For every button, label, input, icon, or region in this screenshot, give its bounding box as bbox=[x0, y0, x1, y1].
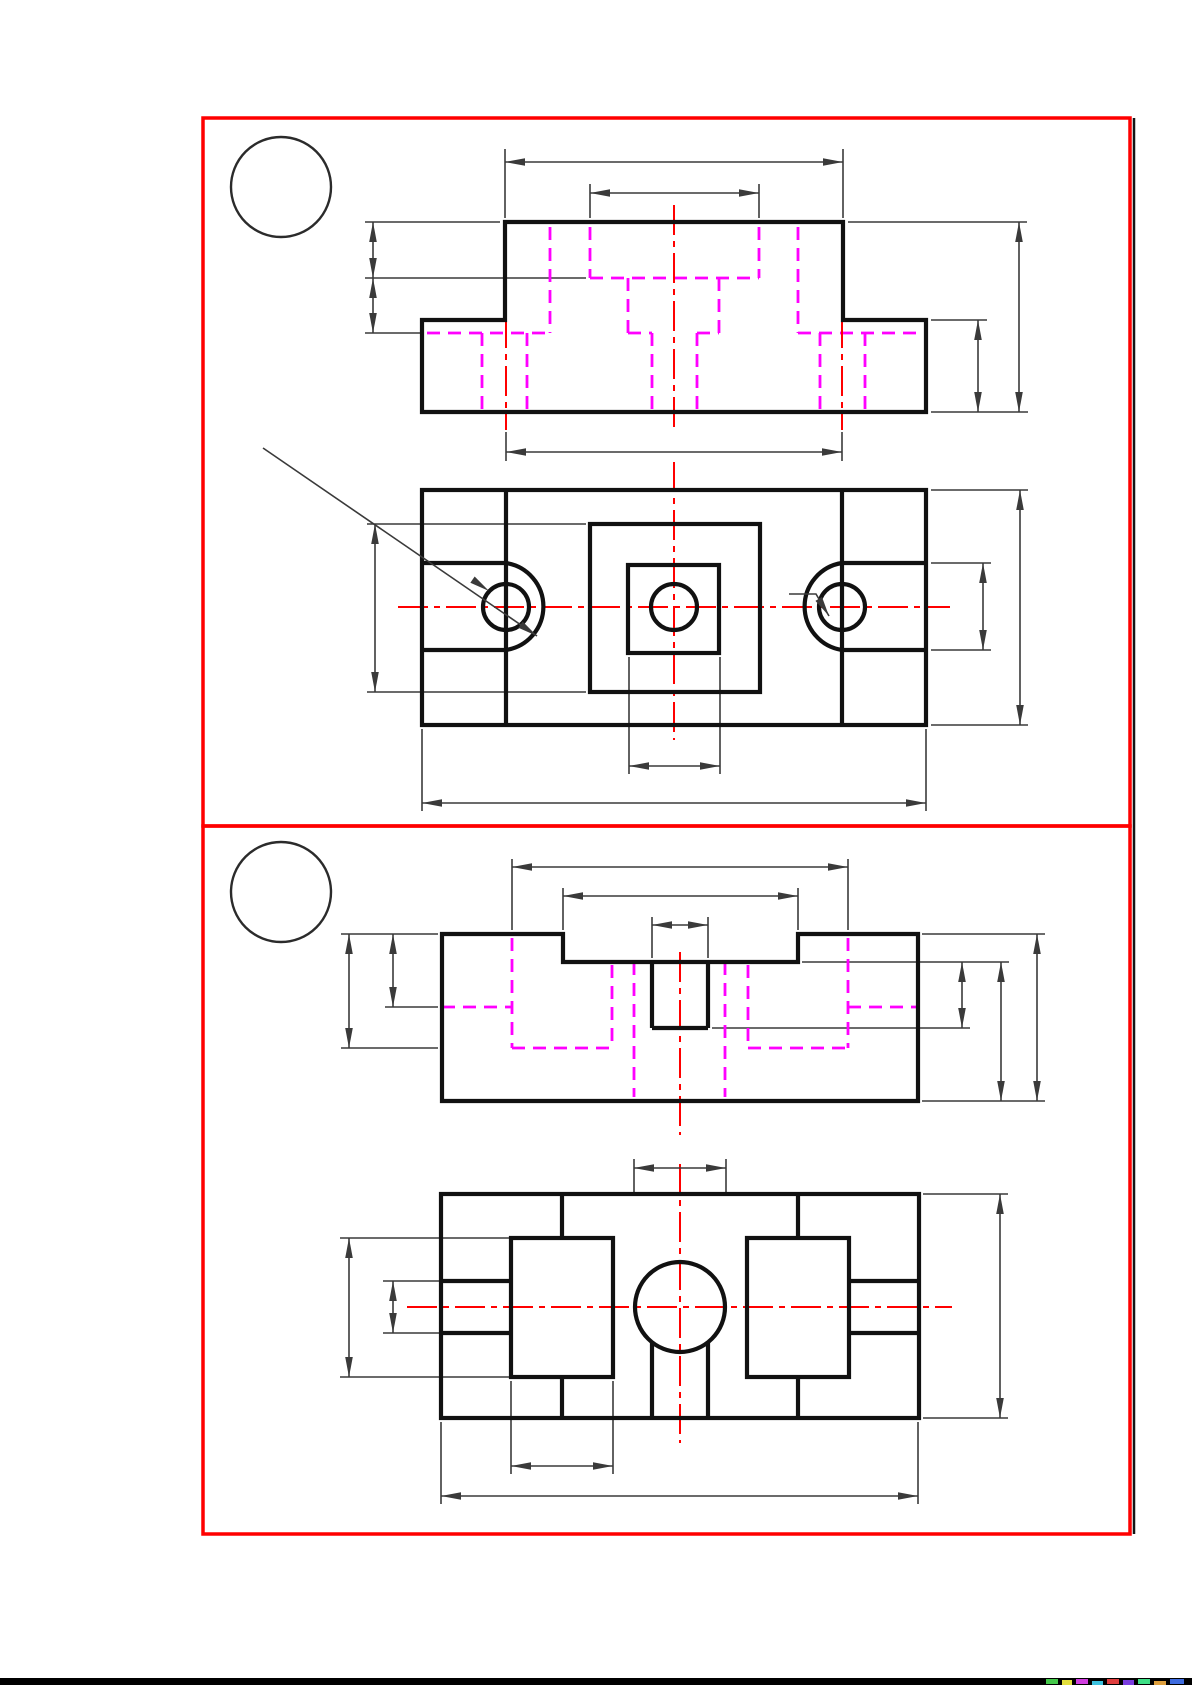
dimension-arrowhead bbox=[778, 892, 798, 900]
bottom-noise-pixel bbox=[1154, 1681, 1166, 1685]
dimension-arrowhead bbox=[369, 258, 377, 278]
dimension-arrowhead bbox=[706, 1164, 726, 1172]
dimension-arrowhead bbox=[441, 1492, 461, 1500]
dimension-arrowhead bbox=[389, 987, 397, 1007]
dimension-arrowhead bbox=[898, 1492, 918, 1500]
drawing-page bbox=[0, 0, 1192, 1685]
dimension-arrowhead bbox=[1033, 1081, 1041, 1101]
dimension-arrowhead bbox=[629, 762, 649, 770]
dimension-arrowhead bbox=[906, 799, 926, 807]
dimension-arrowhead bbox=[422, 799, 442, 807]
panel-1-balloon-circle bbox=[231, 137, 331, 237]
dimension-arrowhead bbox=[828, 863, 848, 871]
panel-1-border bbox=[203, 118, 1130, 826]
dimension-arrowhead bbox=[505, 158, 525, 166]
dimension-arrowhead bbox=[979, 563, 987, 583]
bottom-noise-pixel bbox=[1076, 1679, 1088, 1684]
dimension-arrowhead bbox=[345, 1357, 353, 1377]
dimension-arrowhead bbox=[506, 448, 526, 456]
dimension-arrowhead bbox=[634, 1164, 654, 1172]
dimension-arrowhead bbox=[345, 934, 353, 954]
bottom-noise-pixel bbox=[1107, 1679, 1119, 1684]
dimension-arrowhead bbox=[822, 448, 842, 456]
dimension-arrowhead bbox=[369, 222, 377, 242]
dimension-arrowhead bbox=[389, 1281, 397, 1301]
dimension-arrowhead bbox=[1015, 222, 1023, 242]
dimension-arrowhead bbox=[563, 892, 583, 900]
dimension-arrowhead bbox=[739, 189, 759, 197]
bottom-noise-pixel bbox=[1092, 1681, 1103, 1685]
dimension-arrowhead bbox=[590, 189, 610, 197]
bottom-noise-pixel bbox=[1062, 1680, 1072, 1685]
bottom-noise-pixel bbox=[1123, 1680, 1134, 1685]
dimension-arrowhead bbox=[958, 962, 966, 982]
dimension-arrowhead bbox=[1016, 705, 1024, 725]
page-bottom-bar bbox=[0, 1678, 1192, 1685]
bottom-noise-pixel bbox=[1046, 1679, 1058, 1684]
dimension-arrowhead bbox=[823, 158, 843, 166]
bottom-noise-pixel bbox=[1138, 1679, 1150, 1684]
dimension-arrowhead bbox=[345, 1238, 353, 1258]
dimension-arrowhead bbox=[958, 1008, 966, 1028]
dimension-arrowhead bbox=[974, 320, 982, 340]
dimension-arrowhead bbox=[371, 672, 379, 692]
dimension-arrowhead bbox=[369, 313, 377, 333]
dimension-arrowhead bbox=[1033, 934, 1041, 954]
dimension-arrowhead bbox=[345, 1028, 353, 1048]
dimension-arrowhead bbox=[652, 921, 672, 929]
panel-2-border bbox=[203, 826, 1130, 1534]
dimension-arrowhead bbox=[974, 392, 982, 412]
dimension-arrowhead bbox=[512, 863, 532, 871]
dimension-arrowhead bbox=[389, 934, 397, 954]
dimension-arrowhead bbox=[1016, 490, 1024, 510]
dimension-arrowhead bbox=[979, 630, 987, 650]
drawing-canvas bbox=[0, 0, 1192, 1685]
dimension-arrowhead bbox=[593, 1462, 613, 1470]
dimension-arrowhead bbox=[997, 1081, 1005, 1101]
bottom-noise-pixel bbox=[1170, 1679, 1184, 1684]
dimension-arrowhead bbox=[997, 962, 1005, 982]
panel-2-balloon-circle bbox=[231, 842, 331, 942]
dimension-arrowhead bbox=[1015, 392, 1023, 412]
dimension-arrowhead bbox=[996, 1194, 1004, 1214]
dimension-arrowhead bbox=[369, 278, 377, 298]
dimension-arrowhead bbox=[688, 921, 708, 929]
dimension-arrowhead bbox=[389, 1313, 397, 1333]
dimension-arrowhead bbox=[996, 1398, 1004, 1418]
dimension-arrowhead bbox=[700, 762, 720, 770]
dimension-arrowhead bbox=[511, 1462, 531, 1470]
